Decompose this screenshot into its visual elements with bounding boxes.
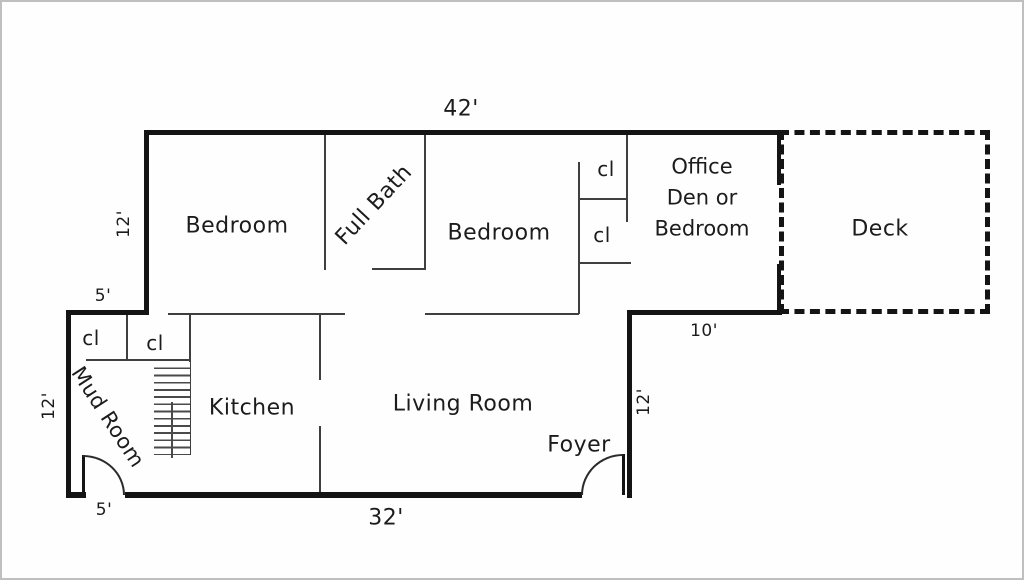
wall-closet-upper-divider2 xyxy=(578,262,631,264)
mud-room-door-swing xyxy=(83,455,125,495)
wall-step xyxy=(66,310,149,315)
office-label-line2: Den or xyxy=(655,183,750,214)
room-label-deck: Deck xyxy=(851,217,908,242)
wall-top xyxy=(144,130,782,135)
closet-label-upper-2: cl xyxy=(593,223,611,247)
floor-plan: 42' 12' 5' 12' 5' 32' 10' 12' Bedroom Fu… xyxy=(0,0,1024,580)
room-label-office: Office Den or Bedroom xyxy=(655,152,750,245)
wall-closet-upper-right xyxy=(626,135,628,222)
dimension-hall-width: 10' xyxy=(690,321,718,341)
closet-label-lower-1: cl xyxy=(82,326,100,350)
wall-bath-bottom xyxy=(372,268,426,270)
dimension-lower-left-height: 12' xyxy=(39,392,59,420)
wall-closet-lower-divider xyxy=(126,315,128,360)
room-label-living-room: Living Room xyxy=(393,392,534,417)
wall-right-lower xyxy=(627,312,632,498)
dimension-bottom-width: 32' xyxy=(368,506,404,531)
wall-kitchen-divider-upper xyxy=(319,313,321,380)
room-label-kitchen: Kitchen xyxy=(209,396,295,421)
foyer-door-swing xyxy=(581,454,623,495)
wall-left-lower xyxy=(66,310,71,498)
wall-mid-thin-right xyxy=(425,313,579,315)
room-label-bedroom-2: Bedroom xyxy=(447,221,550,246)
office-label-line3: Bedroom xyxy=(655,214,750,245)
wall-kitchen-divider-lower xyxy=(319,426,321,492)
room-label-bedroom-1: Bedroom xyxy=(185,214,288,239)
wall-left-upper xyxy=(144,130,149,315)
closet-label-lower-2: cl xyxy=(146,331,164,355)
wall-closet-lower-bottom xyxy=(86,359,190,361)
dimension-step-width: 5' xyxy=(95,286,112,306)
wall-bath-right xyxy=(424,135,426,270)
closet-label-upper-1: cl xyxy=(597,157,615,181)
dimension-mud-door-width: 5' xyxy=(96,500,113,520)
wall-bottom xyxy=(125,492,582,498)
wall-closet-upper-divider1 xyxy=(578,198,628,200)
room-label-mud-room: Mud Room xyxy=(67,362,150,472)
dimension-foyer-right-height: 12' xyxy=(634,388,654,416)
dimension-upper-left-height: 12' xyxy=(114,210,134,238)
stairs-rail xyxy=(171,402,173,458)
room-label-full-bath: Full Bath xyxy=(331,160,418,250)
wall-bath-left xyxy=(324,135,326,270)
wall-closet-upper-left xyxy=(578,162,580,314)
room-label-foyer: Foyer xyxy=(547,433,610,458)
wall-mid-horizontal xyxy=(627,310,782,315)
office-label-line1: Office xyxy=(655,152,750,183)
dimension-top-width: 42' xyxy=(443,97,479,122)
